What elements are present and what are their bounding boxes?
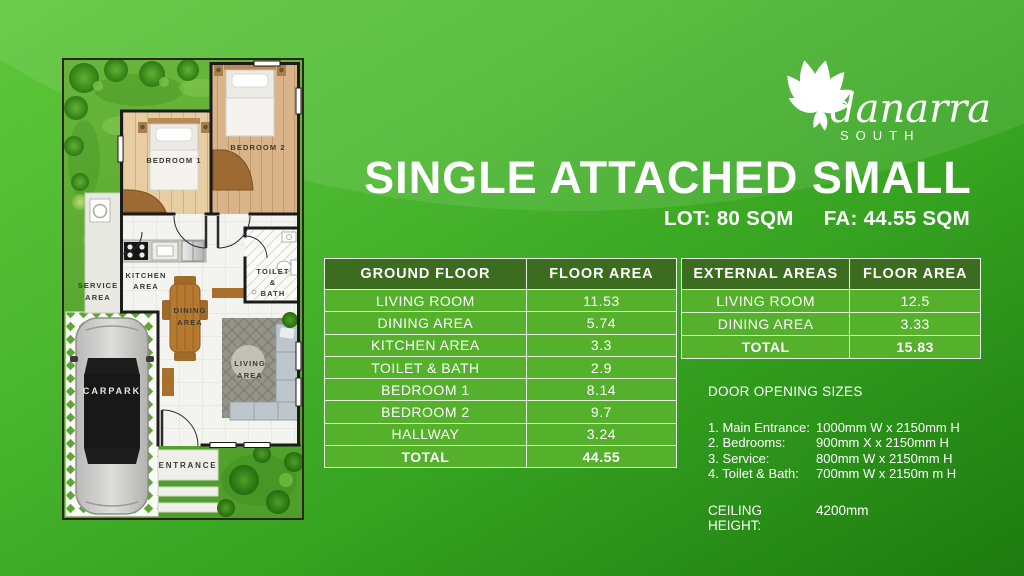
table-row: TOILET & BATH 2.9	[325, 356, 676, 378]
living-label-1: LIVING	[234, 359, 266, 368]
door-size-item: 1. Main Entrance: 1000mm W x 2150mm H	[708, 420, 998, 435]
total-value-cell: 15.83	[850, 336, 980, 358]
kitchen-label-2: AREA	[133, 282, 159, 291]
toilet-label-3: BATH	[261, 289, 286, 298]
logo-subtitle: SOUTH	[840, 128, 921, 143]
living-label-2: AREA	[237, 371, 263, 380]
door-item-value: 700mm W x 2150m m H	[816, 466, 956, 481]
ceiling-height: CEILING HEIGHT: 4200mm	[708, 503, 998, 533]
toilet-label-1: TOILET	[256, 267, 289, 276]
ceiling-height-label: CEILING HEIGHT:	[708, 503, 816, 533]
column-header-area: FLOOR AREA	[850, 259, 980, 289]
lot-size: LOT: 80 SQM	[664, 207, 794, 231]
area-cell: 3.3	[527, 335, 676, 356]
table-row: LIVING ROOM 12.5	[682, 289, 980, 312]
area-cell: 11.53	[527, 290, 676, 311]
table-row: DINING AREA 3.33	[682, 312, 980, 335]
door-item-value: 1000mm W x 2150mm H	[816, 420, 960, 435]
door-item-label: 4. Toilet & Bath:	[708, 466, 816, 481]
table-row: HALLWAY 3.24	[325, 423, 676, 445]
ground-floor-table: GROUND FLOOR FLOOR AREA LIVING ROOM 11.5…	[324, 258, 677, 468]
door-item-label: 2. Bedrooms:	[708, 435, 816, 450]
door-size-item: 2. Bedrooms: 900mm X x 2150mm H	[708, 435, 998, 450]
column-header-area: FLOOR AREA	[527, 259, 676, 289]
entrance-label: ENTRANCE	[159, 461, 218, 470]
total-value-cell: 44.55	[527, 446, 676, 467]
area-cell: 12.5	[850, 290, 980, 312]
toilet-label-2: &	[270, 278, 277, 287]
kitchen-label-1: KITCHEN	[125, 271, 166, 280]
page-title: SINGLE ATTACHED SMALL	[332, 152, 1004, 204]
service-label-2: AREA	[85, 293, 111, 302]
area-cell: 2.9	[527, 357, 676, 378]
floor-plan-panel: CARPARK BEDROOM 1 BEDROOM 2 KITCHEN AREA…	[62, 58, 304, 520]
table-row: LIVING ROOM 11.53	[325, 289, 676, 311]
area-cell: 3.24	[527, 424, 676, 445]
room-cell: LIVING ROOM	[682, 290, 850, 312]
table-header-row: EXTERNAL AREAS FLOOR AREA	[682, 259, 980, 289]
bedroom-2-label: BEDROOM 2	[230, 143, 285, 152]
dining-label-2: AREA	[177, 318, 203, 327]
door-item-label: 3. Service:	[708, 451, 816, 466]
area-cell: 5.74	[527, 312, 676, 333]
room-cell: BEDROOM 2	[325, 401, 527, 422]
kitchen-counter	[122, 240, 206, 262]
dining-label-1: DINING	[174, 306, 207, 315]
door-sizes-title: DOOR OPENING SIZES	[708, 384, 998, 399]
column-header-room: GROUND FLOOR	[325, 259, 527, 289]
car: CARPARK	[70, 318, 154, 514]
total-label-cell: TOTAL	[682, 336, 850, 358]
bedroom-1-label: BEDROOM 1	[146, 156, 201, 165]
table-row: BEDROOM 1 8.14	[325, 378, 676, 400]
table-row: DINING AREA 5.74	[325, 311, 676, 333]
door-sizes-list: 1. Main Entrance: 1000mm W x 2150mm H 2.…	[708, 420, 998, 482]
room-cell: BEDROOM 1	[325, 379, 527, 400]
brochure-page: { "logo": { "name": "danarra", "subtitle…	[0, 0, 1024, 576]
logo: danarra SOUTH	[742, 14, 1022, 148]
table-header-row: GROUND FLOOR FLOOR AREA	[325, 259, 676, 289]
table-total-row: TOTAL 44.55	[325, 445, 676, 467]
door-item-value: 800mm W x 2150mm H	[816, 451, 953, 466]
area-cell: 8.14	[527, 379, 676, 400]
floor-area-size: FA: 44.55 SQM	[824, 207, 970, 231]
size-summary: LOT: 80 SQM FA: 44.55 SQM	[664, 207, 970, 231]
door-size-item: 3. Service: 800mm W x 2150mm H	[708, 451, 998, 466]
area-cell: 9.7	[527, 401, 676, 422]
total-label-cell: TOTAL	[325, 446, 527, 467]
carpark-label: CARPARK	[83, 386, 141, 396]
room-cell: TOILET & BATH	[325, 357, 527, 378]
table-row: KITCHEN AREA 3.3	[325, 334, 676, 356]
room-cell: HALLWAY	[325, 424, 527, 445]
room-cell: LIVING ROOM	[325, 290, 527, 311]
door-item-value: 900mm X x 2150mm H	[816, 435, 949, 450]
ceiling-height-value: 4200mm	[816, 503, 869, 533]
room-cell: KITCHEN AREA	[325, 335, 527, 356]
service-label-1: SERVICE	[78, 281, 119, 290]
danarra-leaves-logo-icon: danarra SOUTH	[778, 59, 991, 143]
room-cell: DINING AREA	[682, 313, 850, 335]
column-header-room: EXTERNAL AREAS	[682, 259, 850, 289]
area-cell: 3.33	[850, 313, 980, 335]
door-size-item: 4. Toilet & Bath: 700mm W x 2150m m H	[708, 466, 998, 481]
table-row: BEDROOM 2 9.7	[325, 400, 676, 422]
room-cell: DINING AREA	[325, 312, 527, 333]
table-total-row: TOTAL 15.83	[682, 335, 980, 358]
door-opening-sizes: DOOR OPENING SIZES 1. Main Entrance: 100…	[708, 384, 998, 533]
logo-wordmark: danarra	[830, 86, 991, 132]
external-areas-table: EXTERNAL AREAS FLOOR AREA LIVING ROOM 12…	[681, 258, 981, 359]
door-item-label: 1. Main Entrance:	[708, 420, 816, 435]
floor-plan-illustration: CARPARK BEDROOM 1 BEDROOM 2 KITCHEN AREA…	[64, 60, 302, 518]
